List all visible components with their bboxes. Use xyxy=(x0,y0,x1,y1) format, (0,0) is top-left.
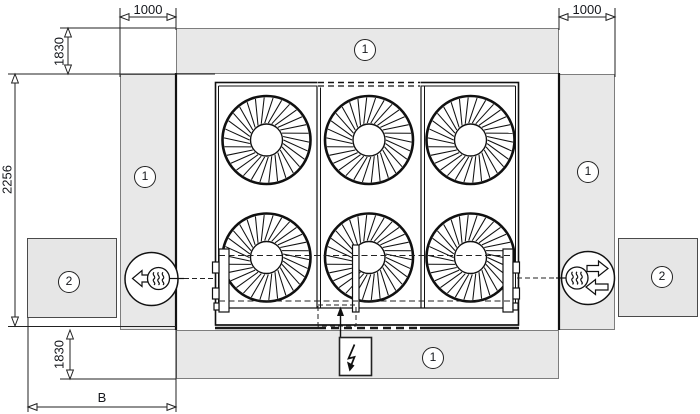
fan-impeller xyxy=(325,214,413,302)
zone-1-marker-left: 1 xyxy=(134,166,156,188)
fan-impeller xyxy=(325,96,413,184)
fan-impeller xyxy=(427,214,515,302)
installation-clearance-diagram: 1 1 1 1 2 2 1000 1000 1830 2256 1830 B xyxy=(0,0,700,414)
dim-unit-depth: 2256 xyxy=(0,145,15,215)
zone-1-marker-top: 1 xyxy=(354,39,376,61)
zone-2-marker-left: 2 xyxy=(58,271,80,293)
fan-impeller xyxy=(223,96,311,184)
fan-impeller xyxy=(223,214,311,302)
heat-exchanger-icon xyxy=(148,268,170,290)
heat-exchanger-icon xyxy=(566,267,588,289)
dim-top-right-clearance: 1000 xyxy=(557,2,617,17)
dim-top-left-clearance: 1000 xyxy=(118,2,178,17)
dim-bottom-width: B xyxy=(82,390,122,405)
dim-lower-side-clearance: 1830 xyxy=(52,325,67,385)
zone-1-marker-bottom: 1 xyxy=(422,347,444,369)
dim-upper-side-clearance: 1830 xyxy=(52,22,67,82)
zone-1-marker-right: 1 xyxy=(577,161,599,183)
zone-2-marker-right: 2 xyxy=(651,266,673,288)
fan-impeller xyxy=(427,96,515,184)
drawing-linework xyxy=(0,0,700,414)
hydraulic-connection-right-icon xyxy=(556,252,615,305)
